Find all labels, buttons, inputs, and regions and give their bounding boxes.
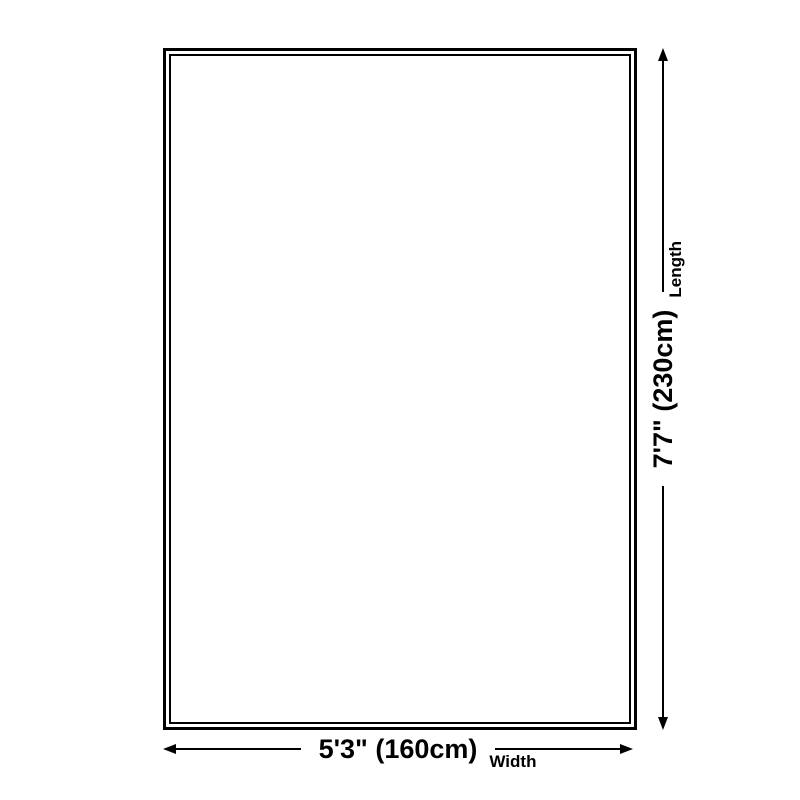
arrow-right-icon	[620, 744, 633, 754]
width-value: 5'3" (160cm)	[319, 736, 478, 763]
length-dimension: 7'7" (230cm) Length	[643, 48, 683, 730]
rug-size-diagram: 5'3" (160cm) Width 7'7" (230cm) Length	[0, 0, 800, 800]
arrow-up-icon	[658, 48, 668, 61]
length-value: 7'7" (230cm)	[650, 310, 677, 469]
width-dimension: 5'3" (160cm) Width	[163, 729, 633, 769]
length-dimension-line-lower	[662, 486, 664, 717]
arrow-down-icon	[658, 717, 668, 730]
rug-outline-inner	[169, 54, 631, 724]
width-dimension-line-right: Width	[495, 748, 620, 750]
width-axis-label: Width	[489, 753, 536, 770]
length-axis-label: Length	[667, 241, 684, 298]
width-dimension-line-left	[176, 748, 301, 750]
arrow-left-icon	[163, 744, 176, 754]
length-dimension-line-upper: Length	[662, 61, 664, 292]
rug-outline	[163, 48, 637, 730]
